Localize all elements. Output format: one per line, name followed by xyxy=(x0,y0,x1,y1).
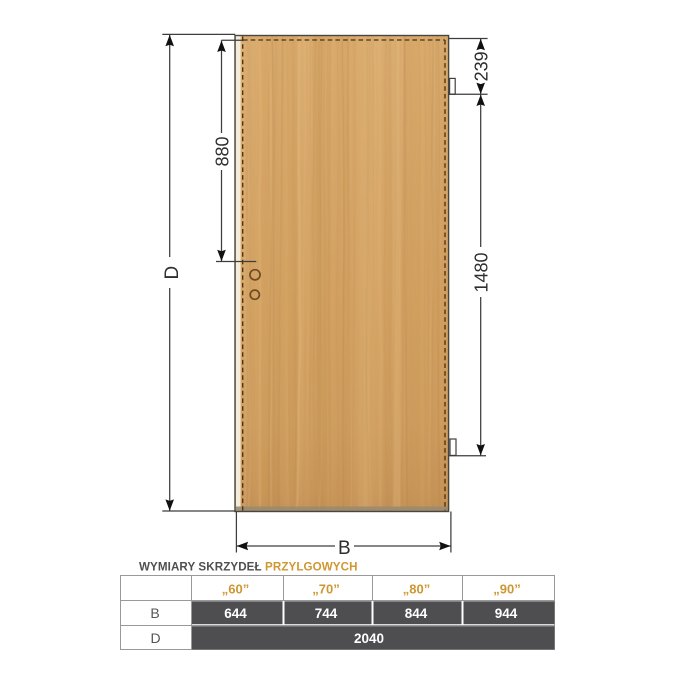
svg-text:2040: 2040 xyxy=(354,631,384,646)
svg-text:„60”: „60” xyxy=(222,582,249,597)
svg-text:644: 644 xyxy=(224,606,247,621)
svg-text:„90”: „90” xyxy=(493,582,520,597)
svg-text:744: 744 xyxy=(315,606,338,621)
svg-text:WYMIARY SKRZYDEŁ PRZYLGOWYCH: WYMIARY SKRZYDEŁ PRZYLGOWYCH xyxy=(139,561,358,574)
svg-text:B: B xyxy=(338,538,351,559)
svg-text:D: D xyxy=(162,266,183,280)
svg-text:844: 844 xyxy=(405,606,428,621)
svg-text:„80”: „80” xyxy=(403,582,430,597)
svg-text:239: 239 xyxy=(472,51,492,81)
svg-text:1480: 1480 xyxy=(472,252,492,292)
svg-text:880: 880 xyxy=(213,136,233,166)
svg-text:D: D xyxy=(151,630,161,646)
svg-text:„70”: „70” xyxy=(312,582,339,597)
svg-text:944: 944 xyxy=(495,606,518,621)
svg-text:B: B xyxy=(150,605,159,621)
